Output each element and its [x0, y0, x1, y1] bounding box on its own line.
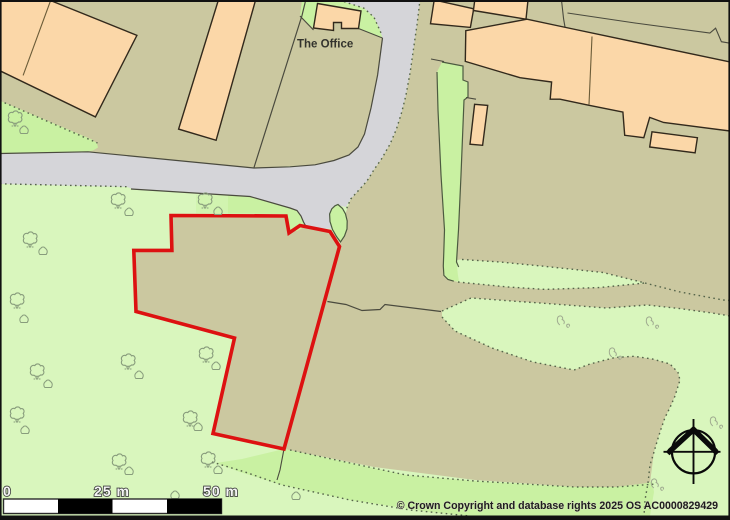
svg-text:50 m: 50 m — [203, 483, 239, 499]
svg-text:The Office: The Office — [297, 39, 353, 51]
svg-text:25 m: 25 m — [94, 483, 130, 499]
svg-text:0: 0 — [3, 483, 11, 499]
svg-text:© Crown Copyright and database: © Crown Copyright and database rights 20… — [397, 500, 718, 512]
